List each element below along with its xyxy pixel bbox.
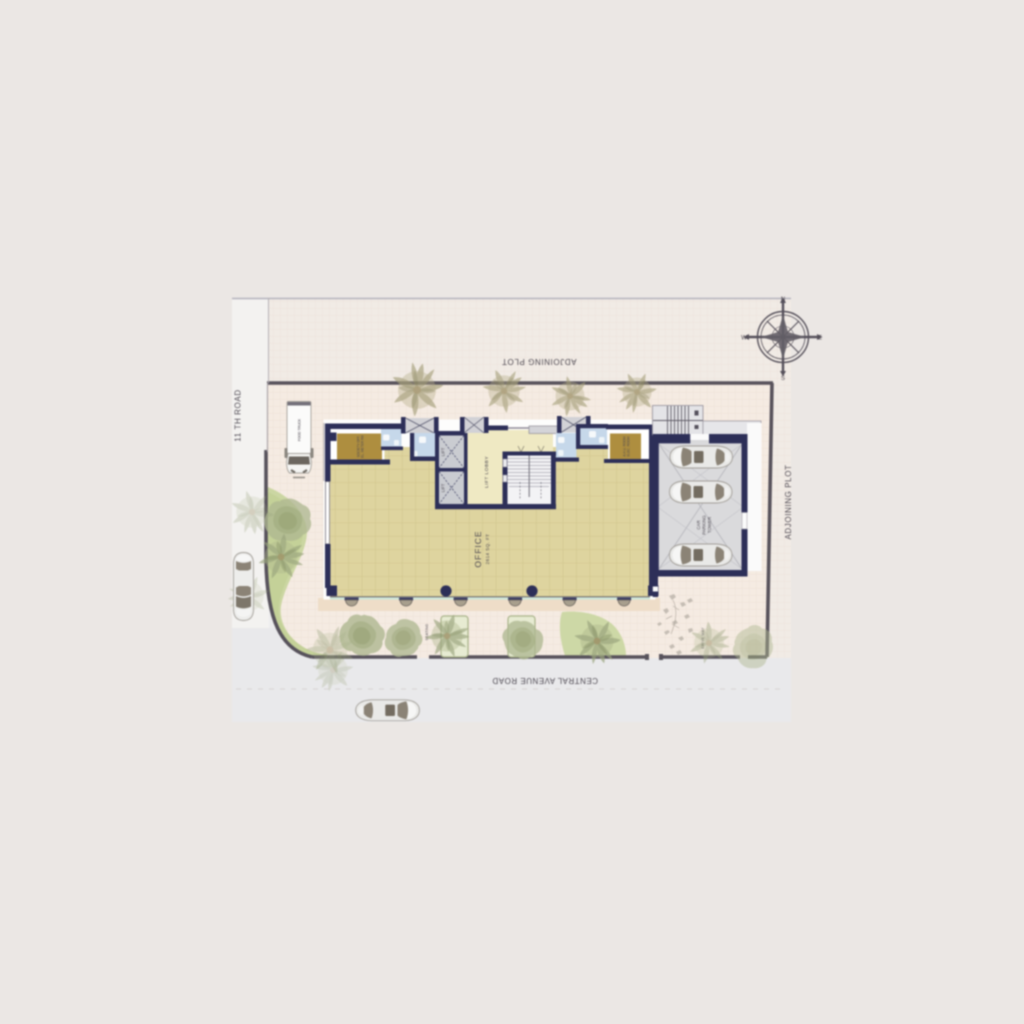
svg-text:E: E — [818, 336, 822, 342]
svg-text:EL. METER RM: EL. METER RM — [361, 435, 365, 458]
svg-text:LIFT LOBBY: LIFT LOBBY — [484, 456, 490, 488]
svg-text:W: W — [741, 336, 747, 342]
svg-text:ELEC. ROOM: ELEC. ROOM — [627, 436, 631, 456]
svg-text:ADJOINING PLOT: ADJOINING PLOT — [501, 357, 576, 366]
svg-text:11 TH ROAD: 11 TH ROAD — [234, 389, 243, 441]
svg-text:LIFT: LIFT — [441, 447, 446, 456]
svg-text:OFFICE: OFFICE — [473, 530, 483, 567]
svg-text:CENTRAL AVENUE ROAD: CENTRAL AVENUE ROAD — [492, 676, 598, 685]
svg-text:CAR: CAR — [696, 520, 701, 529]
svg-text:LIFT: LIFT — [441, 483, 446, 492]
svg-text:2614 SQ. FT: 2614 SQ. FT — [485, 534, 490, 565]
svg-text:ADJOINING PLOT: ADJOINING PLOT — [784, 464, 793, 539]
svg-text:PARKING: PARKING — [702, 515, 707, 535]
svg-text:S: S — [781, 376, 785, 382]
svg-text:TOWER: TOWER — [707, 517, 712, 533]
svg-text:FOOD TRUCK: FOOD TRUCK — [298, 418, 302, 441]
svg-text:N: N — [781, 297, 785, 303]
